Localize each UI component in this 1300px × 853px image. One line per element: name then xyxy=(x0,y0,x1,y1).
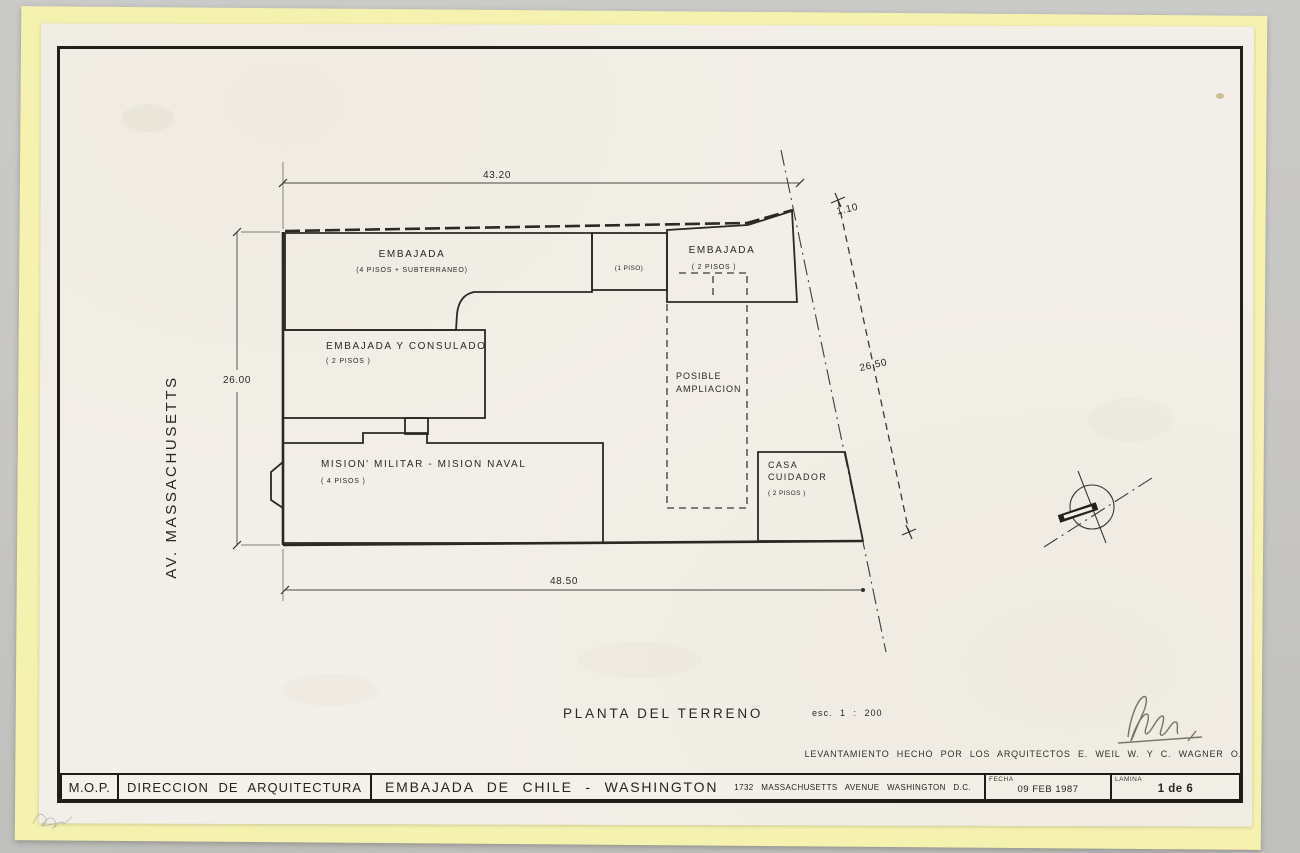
date-label: FECHA xyxy=(986,775,1110,783)
dimension-left-label: 26.00 xyxy=(223,375,251,386)
title-block-date-cell: FECHA 09 FEB 1987 xyxy=(986,775,1112,799)
casa-cuidador-floors: ( 2 PISOS ) xyxy=(768,490,806,497)
title-block-address: 1732 MASSACHUSETTS AVENUE WASHINGTON D.C… xyxy=(734,783,971,792)
signature xyxy=(1118,696,1202,743)
ampliacion-label-line1: POSIBLE xyxy=(676,371,722,381)
scan-stains xyxy=(122,93,1224,706)
boundary-diagonal-line xyxy=(781,150,886,652)
casa-cuidador-label-line1: CASA xyxy=(768,460,798,470)
title-block-project-cell: EMBAJADA DE CHILE - WASHINGTON 1732 MASS… xyxy=(372,775,986,799)
consulado-floors: ( 2 PISOS ) xyxy=(326,358,371,365)
credits-line: LEVANTAMIENTO HECHO POR LOS ARQUITECTOS … xyxy=(805,749,1242,759)
dimension-lines xyxy=(233,162,916,601)
mision-floors: ( 4 PISOS ) xyxy=(321,478,366,485)
building-one-story-link-outline xyxy=(592,233,667,290)
one-story-link-label: (1 PISO) xyxy=(615,265,643,272)
title-block: M.O.P. DIRECCION DE ARQUITECTURA EMBAJAD… xyxy=(60,773,1241,801)
plan-scale: esc. 1 : 200 xyxy=(812,708,883,718)
embajada-main-label: EMBAJADA xyxy=(379,249,446,260)
sheet-label: LAMINA xyxy=(1112,775,1239,783)
north-compass-icon xyxy=(1044,471,1152,547)
title-block-project: EMBAJADA DE CHILE - WASHINGTON xyxy=(385,779,718,795)
street-label: AV. MASSACHUSETTS xyxy=(163,375,180,578)
sheet-value: 1 de 6 xyxy=(1112,783,1239,795)
mision-label: MISION' MILITAR - MISION NAVAL xyxy=(321,459,526,470)
building-mision-outline xyxy=(271,433,603,543)
lot-boundary xyxy=(283,150,886,652)
title-block-sheet-cell: LAMINA 1 de 6 xyxy=(1112,775,1239,799)
date-value: 09 FEB 1987 xyxy=(986,784,1110,795)
title-block-org: M.O.P. xyxy=(62,775,119,799)
building-embajada-main-outline xyxy=(285,233,592,330)
ampliacion-label-line2: AMPLIACION xyxy=(676,384,742,394)
embajada-annex-label: EMBAJADA xyxy=(689,245,756,256)
title-block-department: DIRECCION DE ARQUITECTURA xyxy=(119,775,372,799)
embajada-main-floors: (4 PISOS + SUBTERRANEO) xyxy=(356,267,468,274)
dimension-top-label: 43.20 xyxy=(483,170,511,181)
plan-title: PLANTA DEL TERRENO xyxy=(563,706,763,721)
dimension-right-label: 26.50 xyxy=(859,357,889,374)
consulado-label: EMBAJADA Y CONSULADO xyxy=(326,341,487,352)
building-connector-outline xyxy=(405,418,428,434)
dimension-bottom-label: 48.50 xyxy=(550,576,578,587)
casa-cuidador-label-line2: CUIDADOR xyxy=(768,472,827,482)
pencil-scribble xyxy=(33,814,72,828)
site-plan-drawing: 43.20 26.00 48.50 26.50 1.10 EMBAJADA (4… xyxy=(0,0,1300,853)
embajada-annex-floors: ( 2 PISOS ) xyxy=(692,264,737,271)
